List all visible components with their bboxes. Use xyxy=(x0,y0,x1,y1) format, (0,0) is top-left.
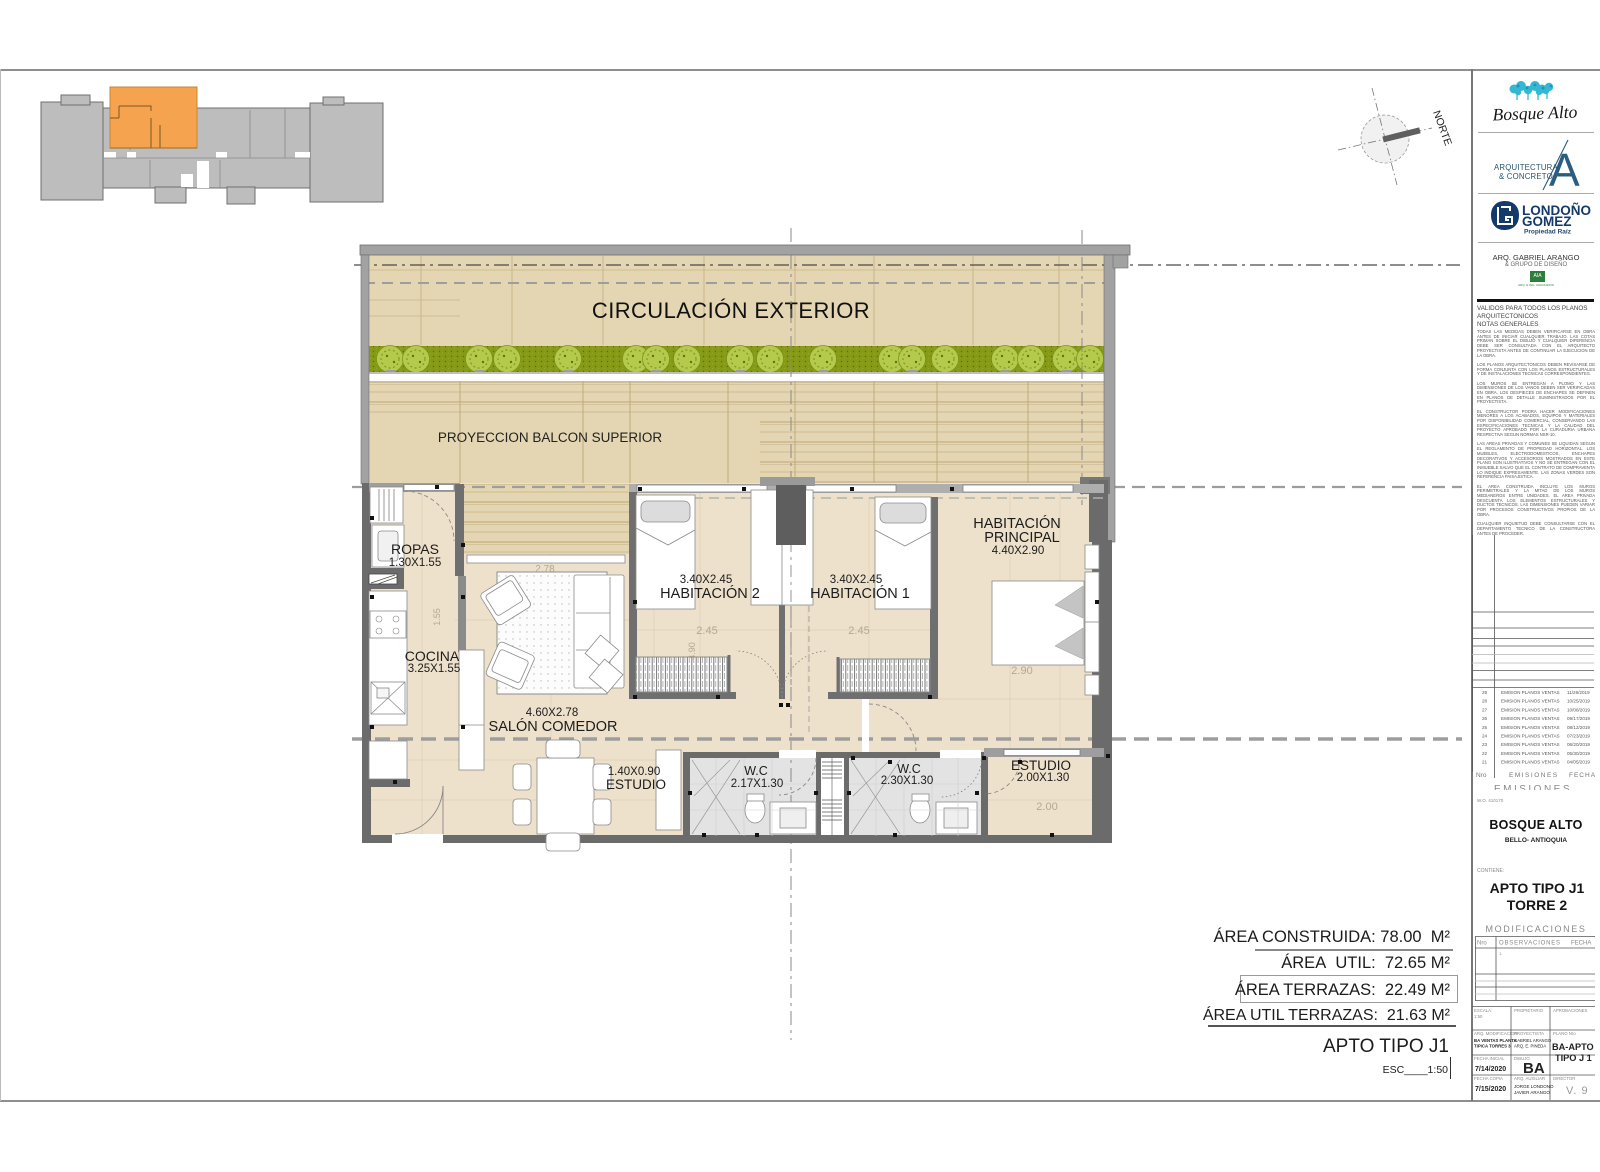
svg-text:BA VENTAS PLANTA: BA VENTAS PLANTA xyxy=(1474,1038,1517,1043)
svg-text:2.00: 2.00 xyxy=(1036,801,1057,813)
svg-text:09/17/2019: 09/17/2019 xyxy=(1567,716,1590,721)
svg-text:1.: 1. xyxy=(1499,951,1502,956)
svg-text:EMISION PLANOS VENTAS: EMISION PLANOS VENTAS xyxy=(1501,716,1560,721)
svg-text:1:50: 1:50 xyxy=(1474,1014,1483,1019)
svg-text:4.60X2.78: 4.60X2.78 xyxy=(526,707,578,719)
svg-text:2.45: 2.45 xyxy=(696,625,717,637)
svg-text:HABITACIÓN 2: HABITACIÓN 2 xyxy=(660,585,760,602)
svg-text:1.55: 1.55 xyxy=(432,608,442,626)
svg-text:2.90: 2.90 xyxy=(1011,665,1032,677)
svg-text:21: 21 xyxy=(1482,760,1488,765)
svg-text:HABITACIÓN 1: HABITACIÓN 1 xyxy=(810,585,910,602)
svg-text:SALÓN COMEDOR: SALÓN COMEDOR xyxy=(489,718,618,735)
svg-text:23: 23 xyxy=(1482,742,1488,747)
svg-text:7/15/2020: 7/15/2020 xyxy=(1475,1086,1506,1093)
svg-text:EMISION PLANOS VENTAS: EMISION PLANOS VENTAS xyxy=(1501,725,1560,730)
svg-text:ARQ. MODIFICACION: ARQ. MODIFICACION xyxy=(1474,1031,1517,1036)
svg-text:3.40X2.45: 3.40X2.45 xyxy=(680,574,732,586)
svg-text:BA-APTO: BA-APTO xyxy=(1552,1042,1594,1052)
svg-text:2.30X1.30: 2.30X1.30 xyxy=(881,775,933,787)
svg-text:EMISIONES: EMISIONES xyxy=(1509,772,1559,779)
svg-text:GOMEZ: GOMEZ xyxy=(1522,214,1572,229)
svg-text:TIPO J 1: TIPO J 1 xyxy=(1555,1053,1592,1063)
svg-text:2.00X1.30: 2.00X1.30 xyxy=(1017,772,1069,784)
svg-text:ROPAS: ROPAS xyxy=(391,541,439,557)
svg-text:EMISION PLANOS VENTAS: EMISION PLANOS VENTAS xyxy=(1501,734,1560,739)
svg-text:10/25/2019: 10/25/2019 xyxy=(1567,699,1590,704)
svg-text:07/23/2019: 07/23/2019 xyxy=(1567,734,1590,739)
svg-text:1.30X1.55: 1.30X1.55 xyxy=(389,557,441,569)
svg-text:OBSERVACIONES: OBSERVACIONES xyxy=(1499,941,1561,947)
svg-text:22: 22 xyxy=(1482,751,1488,756)
svg-text:EMISION PLANOS VENTAS: EMISION PLANOS VENTAS xyxy=(1501,707,1560,712)
svg-text:NORTE: NORTE xyxy=(1430,109,1454,147)
svg-text:EMISION PLANOS VENTAS: EMISION PLANOS VENTAS xyxy=(1501,760,1560,765)
svg-text:4.90: 4.90 xyxy=(687,642,697,660)
svg-text:25: 25 xyxy=(1482,725,1488,730)
svg-text:ARQ. E. PINEDA: ARQ. E. PINEDA xyxy=(1514,1044,1546,1049)
svg-text:08/12/2019: 08/12/2019 xyxy=(1567,725,1590,730)
svg-text:3.40X2.45: 3.40X2.45 xyxy=(830,574,882,586)
svg-text:FECHA: FECHA xyxy=(1571,941,1591,947)
svg-text:2.45: 2.45 xyxy=(848,625,869,637)
svg-text:EMISION PLANOS VENTAS: EMISION PLANOS VENTAS xyxy=(1501,690,1560,695)
svg-text:27: 27 xyxy=(1482,707,1488,712)
svg-text:11/26/2019: 11/26/2019 xyxy=(1567,690,1590,695)
svg-text:JAVIER ARANGO: JAVIER ARANGO xyxy=(1514,1090,1550,1095)
svg-text:FECHA COPIA: FECHA COPIA xyxy=(1474,1076,1503,1081)
svg-text:PLANO Nro: PLANO Nro xyxy=(1553,1031,1576,1036)
svg-text:29: 29 xyxy=(1482,690,1488,695)
svg-text:FECHA: FECHA xyxy=(1569,772,1596,779)
svg-text:W.C: W.C xyxy=(897,762,921,776)
svg-text:CIRCULACIÓN EXTERIOR: CIRCULACIÓN EXTERIOR xyxy=(592,298,870,323)
svg-text:7/14/2020: 7/14/2020 xyxy=(1475,1066,1506,1073)
svg-text:4.40X2.90: 4.40X2.90 xyxy=(992,545,1044,557)
svg-text:EMISIONES: EMISIONES xyxy=(1494,784,1572,790)
svg-text:ARQUITECTURA: ARQUITECTURA xyxy=(1494,163,1559,172)
svg-text:3.25X1.55: 3.25X1.55 xyxy=(408,663,460,675)
svg-text:DIRECTOR: DIRECTOR xyxy=(1553,1076,1575,1081)
svg-text:BA: BA xyxy=(1523,1060,1545,1077)
svg-text:JORGE LONDONO: JORGE LONDONO xyxy=(1514,1084,1554,1089)
svg-text:FECHA INICIAL: FECHA INICIAL xyxy=(1474,1056,1505,1061)
svg-text:Bosque Alto: Bosque Alto xyxy=(1492,102,1578,125)
svg-text:APROBACIONES: APROBACIONES xyxy=(1553,1008,1588,1013)
svg-text:24: 24 xyxy=(1482,734,1488,739)
svg-text:W.C: W.C xyxy=(744,764,768,778)
svg-text:EMISION PLANOS VENTAS: EMISION PLANOS VENTAS xyxy=(1501,742,1560,747)
svg-text:04/05/2019: 04/05/2019 xyxy=(1567,760,1590,765)
svg-text:Nro: Nro xyxy=(1476,772,1487,779)
svg-text:& CONCRETO: & CONCRETO xyxy=(1499,172,1553,181)
svg-text:EMISION PLANOS VENTAS: EMISION PLANOS VENTAS xyxy=(1501,699,1560,704)
svg-text:05/30/2019: 05/30/2019 xyxy=(1567,751,1590,756)
svg-text:V. 9: V. 9 xyxy=(1566,1085,1589,1097)
svg-text:PRINCIPAL: PRINCIPAL xyxy=(984,530,1059,546)
svg-text:28: 28 xyxy=(1482,699,1488,704)
svg-text:COCINA: COCINA xyxy=(405,648,460,664)
svg-text:2.17X1.30: 2.17X1.30 xyxy=(731,778,783,790)
svg-text:10/08/2019: 10/08/2019 xyxy=(1567,707,1590,712)
svg-text:ESCALA:: ESCALA: xyxy=(1474,1008,1492,1013)
svg-text:26: 26 xyxy=(1482,716,1488,721)
svg-text:PROPIETARIO: PROPIETARIO xyxy=(1514,1008,1544,1013)
svg-text:EMISION PLANOS VENTAS: EMISION PLANOS VENTAS xyxy=(1501,751,1560,756)
svg-text:Nro: Nro xyxy=(1477,941,1487,947)
svg-text:GABRIEL ARANGO: GABRIEL ARANGO xyxy=(1514,1038,1552,1043)
svg-text:PROYECCION BALCON SUPERIOR: PROYECCION BALCON SUPERIOR xyxy=(438,430,663,445)
svg-text:ESTUDIO: ESTUDIO xyxy=(606,777,666,792)
svg-text:TIPICA TORRES 3: TIPICA TORRES 3 xyxy=(1474,1044,1511,1049)
svg-text:06/20/2019: 06/20/2019 xyxy=(1567,742,1590,747)
svg-text:2.78: 2.78 xyxy=(535,564,555,575)
svg-text:Propiedad Raíz: Propiedad Raíz xyxy=(1524,229,1572,236)
svg-text:PROYECTISTA: PROYECTISTA xyxy=(1514,1031,1544,1036)
